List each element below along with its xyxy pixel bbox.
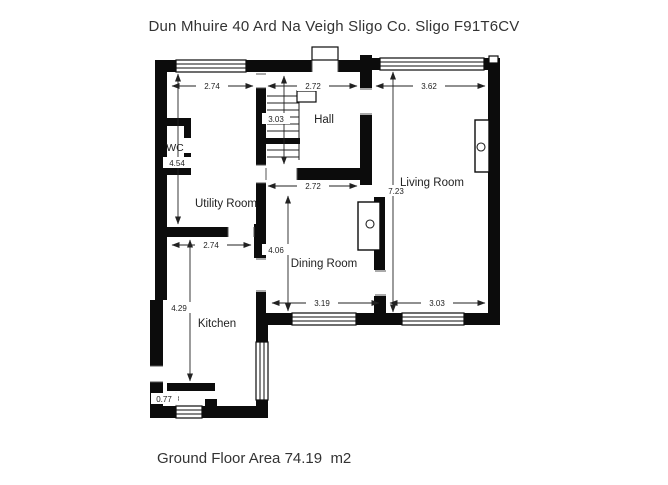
dim-hall-top: 2.72 [305,82,321,91]
room-label-utility: Utility Room [195,198,257,210]
dim-dining-height: 4.06 [268,246,284,255]
staircase [266,91,316,160]
room-label-living: Living Room [400,177,464,189]
utility-window [176,60,246,72]
kitchen-bottom-window [176,406,202,418]
dim-kitchen-top: 2.74 [203,241,219,250]
windows [176,58,484,418]
dimension-labels: 2.74 2.72 3.62 3.03 4.54 7.23 2.72 4.06 … [151,81,453,404]
front-door [312,47,338,72]
dim-kitchen-height: 4.29 [171,304,187,313]
interior-walls [167,88,386,391]
dim-kitchen-lobby: 0.77 [156,395,172,404]
dim-living-top: 3.62 [421,82,437,91]
chimney-pillar [489,56,498,63]
room-label-dining: Dining Room [291,258,357,270]
living-fireplace [475,120,489,172]
dining-window [292,313,356,325]
room-labels: WC Hall Utility Room Living Room Dining … [166,114,464,330]
living-top-window [380,58,484,70]
dining-fireplace [358,202,380,250]
room-label-hall: Hall [314,114,334,126]
dim-hall-stairs: 3.03 [268,115,284,124]
stair-landing [297,91,316,102]
room-label-wc: WC [166,142,184,154]
floor-area-text: Ground Floor Area 74.19 m2 [157,450,351,467]
dim-dining-top: 2.72 [305,182,321,191]
dim-utility-top: 2.74 [204,82,220,91]
dim-living-bottom: 3.03 [429,299,445,308]
living-bottom-window [402,313,464,325]
dim-wc-column: 4.54 [169,159,185,168]
kitchen-side-window [256,342,268,400]
dim-dining-bottom: 3.19 [314,299,330,308]
room-label-kitchen: Kitchen [198,318,236,330]
floor-plan: 2.74 2.72 3.62 3.03 4.54 7.23 2.72 4.06 … [0,0,668,485]
